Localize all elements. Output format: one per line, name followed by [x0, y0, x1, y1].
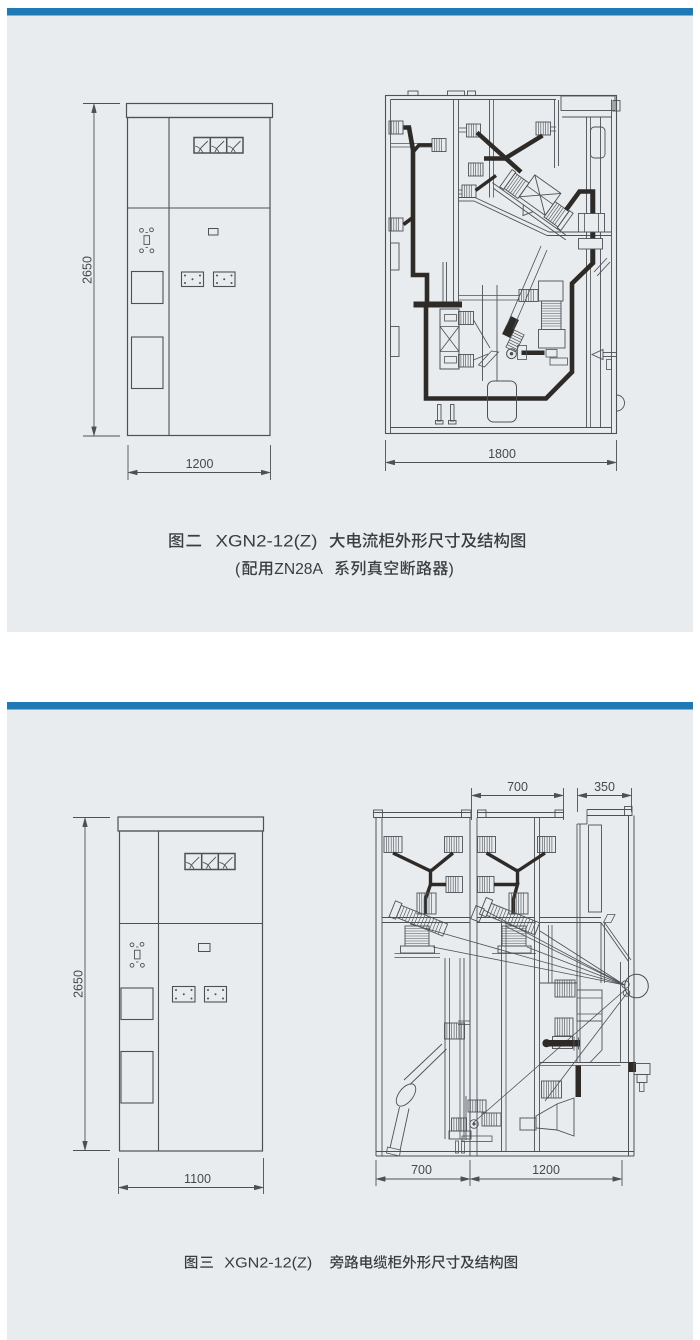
svg-text:XGN2-12(Z): XGN2-12(Z): [216, 533, 318, 551]
svg-text:ZN28A: ZN28A: [274, 561, 323, 578]
svg-text:): ): [449, 561, 454, 578]
svg-text:1800: 1800: [488, 447, 516, 461]
svg-text:(: (: [235, 561, 241, 578]
svg-text:1100: 1100: [184, 1172, 211, 1186]
svg-text:350: 350: [594, 780, 615, 794]
svg-text:700: 700: [507, 780, 528, 794]
svg-text:2650: 2650: [81, 256, 95, 284]
svg-text:1200: 1200: [532, 1163, 560, 1177]
svg-text:1200: 1200: [186, 457, 214, 471]
svg-text:2650: 2650: [72, 970, 86, 998]
svg-text:700: 700: [411, 1163, 432, 1177]
svg-text:XGN2-12(Z): XGN2-12(Z): [224, 1256, 312, 1272]
